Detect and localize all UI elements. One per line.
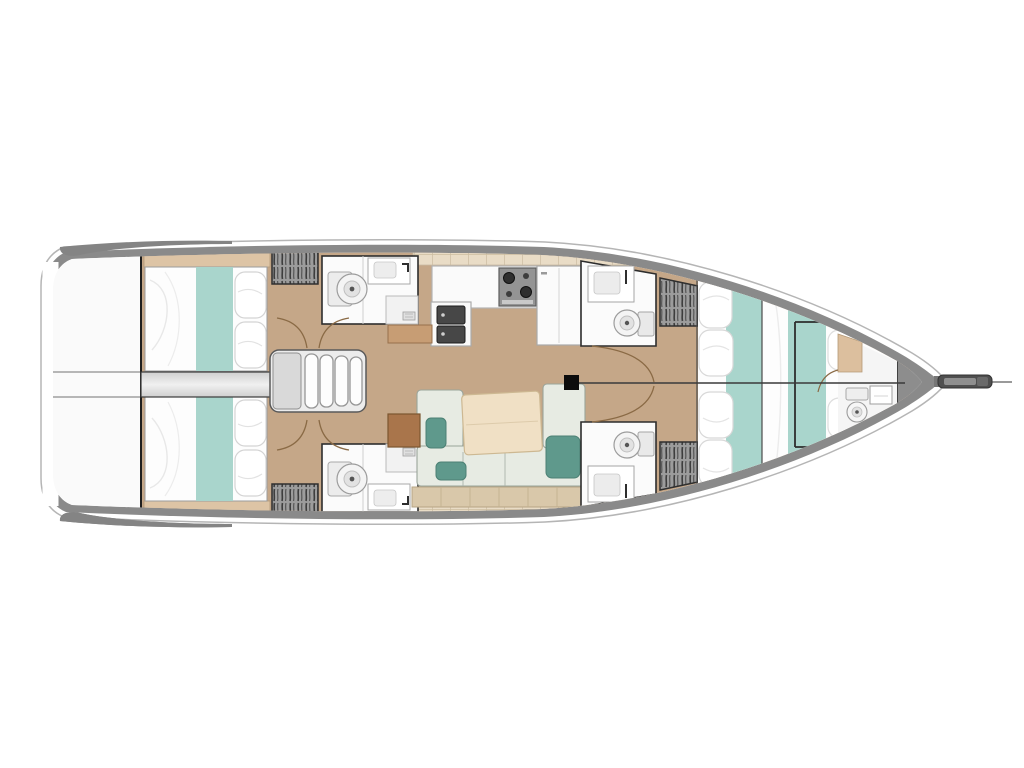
aft-head-starboard <box>322 444 418 512</box>
bowsprit <box>934 375 1012 388</box>
mast <box>564 375 579 390</box>
engine-corridor <box>141 372 277 397</box>
stern-platform <box>50 250 141 520</box>
aft-head-port <box>322 256 418 324</box>
yacht-floor-plan <box>0 0 1024 768</box>
aft-cabin-starboard <box>145 397 267 501</box>
wardrobe-fore-port <box>660 278 698 326</box>
fore-head-starboard <box>581 422 656 507</box>
nav-seat <box>388 414 420 447</box>
salon <box>388 384 586 507</box>
page <box>0 0 1024 768</box>
wardrobe-fore-starboard <box>660 442 698 490</box>
wardrobe-aft-port <box>272 250 318 284</box>
salon-table <box>461 391 542 455</box>
aft-cabin-port <box>145 267 267 371</box>
companionway <box>270 350 366 412</box>
fore-head-port <box>581 261 656 346</box>
